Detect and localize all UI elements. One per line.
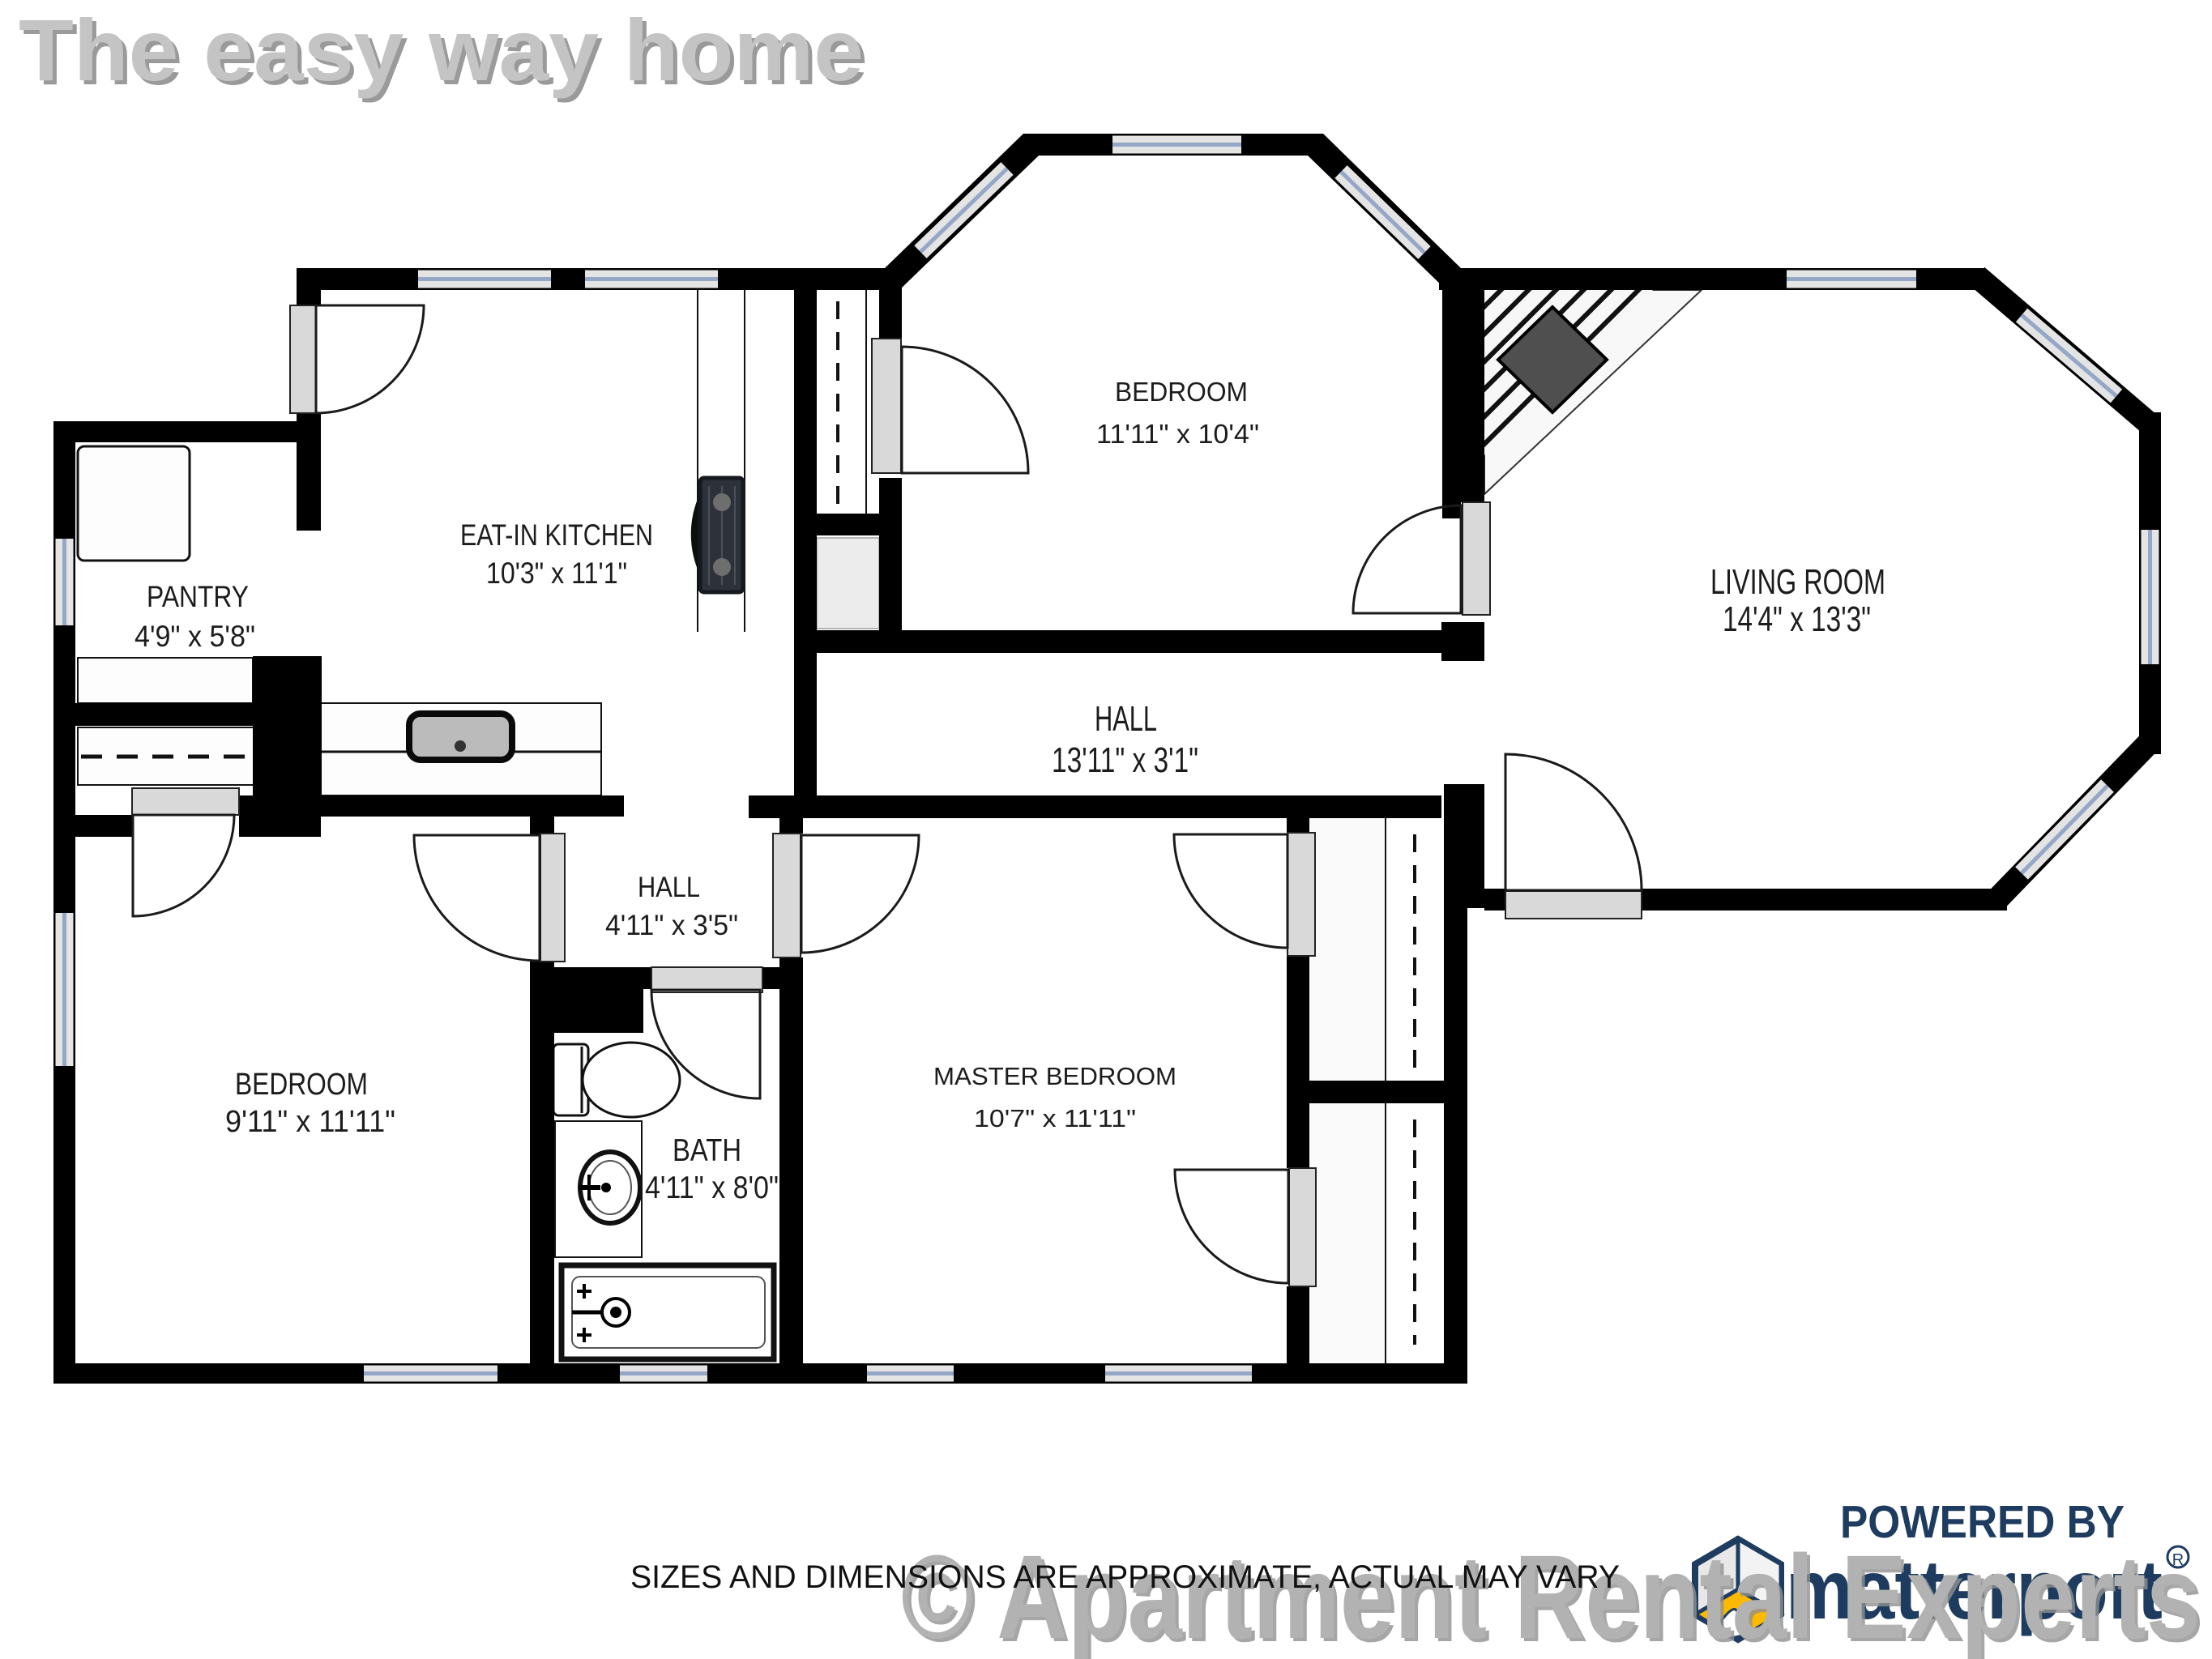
svg-text:BEDROOM: BEDROOM bbox=[1115, 377, 1248, 407]
svg-text:13'11" x 3'1": 13'11" x 3'1" bbox=[1052, 740, 1198, 780]
svg-text:LIVING ROOM: LIVING ROOM bbox=[1710, 562, 1885, 602]
svg-text:9'11" x 11'11": 9'11" x 11'11" bbox=[225, 1105, 395, 1139]
svg-text:14'4" x 13'3": 14'4" x 13'3" bbox=[1723, 599, 1871, 639]
svg-text:4'11" x 3'5": 4'11" x 3'5" bbox=[605, 910, 738, 941]
svg-text:HALL: HALL bbox=[638, 872, 700, 903]
svg-text:SIZES AND DIMENSIONS ARE APPRO: SIZES AND DIMENSIONS ARE APPROXIMATE, AC… bbox=[630, 1559, 1620, 1595]
svg-text:The easy way home: The easy way home bbox=[19, 1, 864, 99]
svg-text:© Apartment Rental Experts: © Apartment Rental Experts bbox=[901, 1531, 2201, 1659]
svg-text:10'7" x 11'11": 10'7" x 11'11" bbox=[974, 1104, 1136, 1132]
svg-text:EAT-IN KITCHEN: EAT-IN KITCHEN bbox=[460, 518, 653, 552]
svg-text:4'9" x 5'8": 4'9" x 5'8" bbox=[135, 620, 255, 653]
svg-text:11'11" x 10'4": 11'11" x 10'4" bbox=[1096, 419, 1259, 449]
svg-text:BATH: BATH bbox=[673, 1133, 741, 1168]
svg-text:4'11" x 8'0": 4'11" x 8'0" bbox=[645, 1171, 779, 1205]
svg-text:HALL: HALL bbox=[1095, 699, 1157, 739]
svg-text:10'3" x 11'1": 10'3" x 11'1" bbox=[486, 557, 627, 590]
svg-text:PANTRY: PANTRY bbox=[147, 580, 249, 613]
svg-text:MASTER BEDROOM: MASTER BEDROOM bbox=[933, 1062, 1176, 1090]
svg-text:BEDROOM: BEDROOM bbox=[235, 1068, 368, 1102]
